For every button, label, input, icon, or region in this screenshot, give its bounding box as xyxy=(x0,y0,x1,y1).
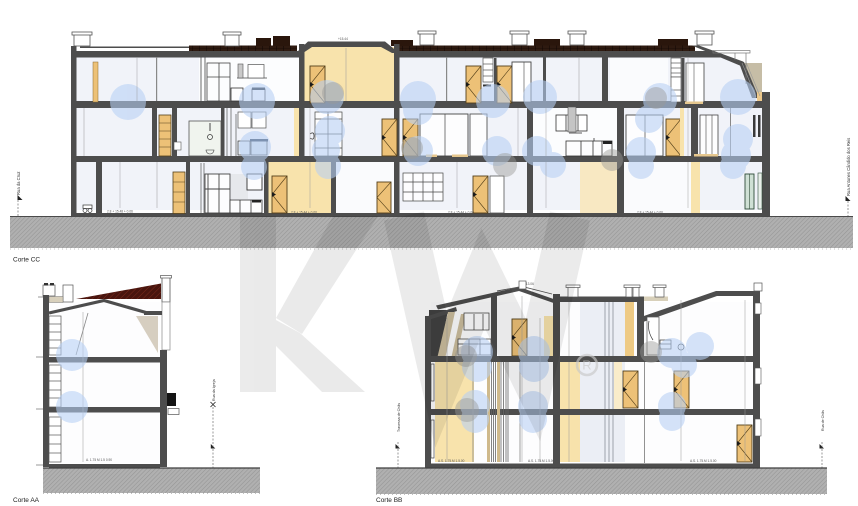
svg-text:Rua Antunes Cândido dos Reis: Rua Antunes Cândido dos Reis xyxy=(846,138,851,196)
svg-text:2.8 + 15.44 + 0.00: 2.8 + 15.44 + 0.00 xyxy=(291,211,317,215)
svg-text:2.8 + 15.44 + 0.00: 2.8 + 15.44 + 0.00 xyxy=(448,211,474,215)
svg-text:Rua de Chãs: Rua de Chãs xyxy=(821,410,825,431)
svg-text:2.8 + 15.48 + 0.06: 2.8 + 15.48 + 0.06 xyxy=(107,210,133,214)
svg-text:Rua da Igreja: Rua da Igreja xyxy=(212,379,216,401)
svg-text:Rua da Cruz: Rua da Cruz xyxy=(16,171,21,195)
svg-text:A.S. 1.75.M 1.5.00: A.S. 1.75.M 1.5.00 xyxy=(690,459,717,463)
svg-text:+15.44: +15.44 xyxy=(338,37,348,41)
svg-text:A. 1.75 M 1.5 0.90: A. 1.75 M 1.5 0.90 xyxy=(86,458,112,462)
svg-text:Corte AA: Corte AA xyxy=(13,497,40,504)
svg-text:A.S. 1.75.M 1.5.00: A.S. 1.75.M 1.5.00 xyxy=(528,459,555,463)
svg-text:Corte CC: Corte CC xyxy=(13,257,40,264)
svg-text:Corte BB: Corte BB xyxy=(376,497,402,504)
svg-text:2.8 + 15.44 + 0.00: 2.8 + 15.44 + 0.00 xyxy=(637,211,663,215)
svg-text:R: R xyxy=(582,358,591,373)
svg-text:A.S. 1.75.M 1.5.00: A.S. 1.75.M 1.5.00 xyxy=(438,459,465,463)
svg-text:Travessa de Chãs: Travessa de Chãs xyxy=(397,403,401,432)
